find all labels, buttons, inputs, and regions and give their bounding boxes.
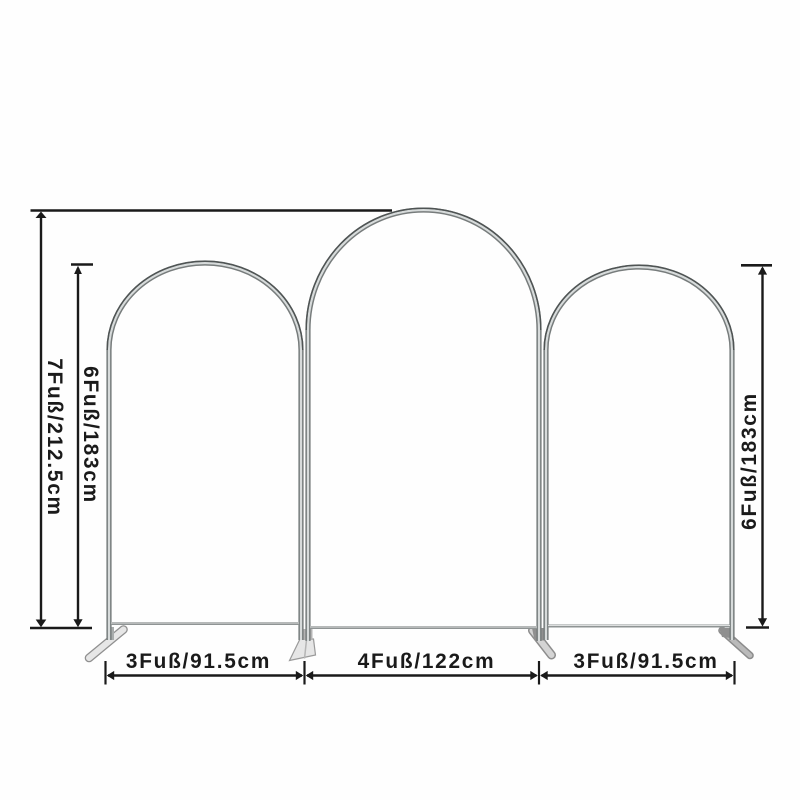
svg-text:3Fuß/91.5cm: 3Fuß/91.5cm	[126, 650, 271, 673]
svg-text:4Fuß/122cm: 4Fuß/122cm	[358, 650, 496, 673]
svg-text:3Fuß/91.5cm: 3Fuß/91.5cm	[573, 650, 718, 673]
svg-text:7Fuß/212.5cm: 7Fuß/212.5cm	[43, 358, 66, 517]
svg-text:6Fuß/183cm: 6Fuß/183cm	[738, 392, 761, 530]
svg-text:6Fuß/183cm: 6Fuß/183cm	[79, 366, 102, 504]
